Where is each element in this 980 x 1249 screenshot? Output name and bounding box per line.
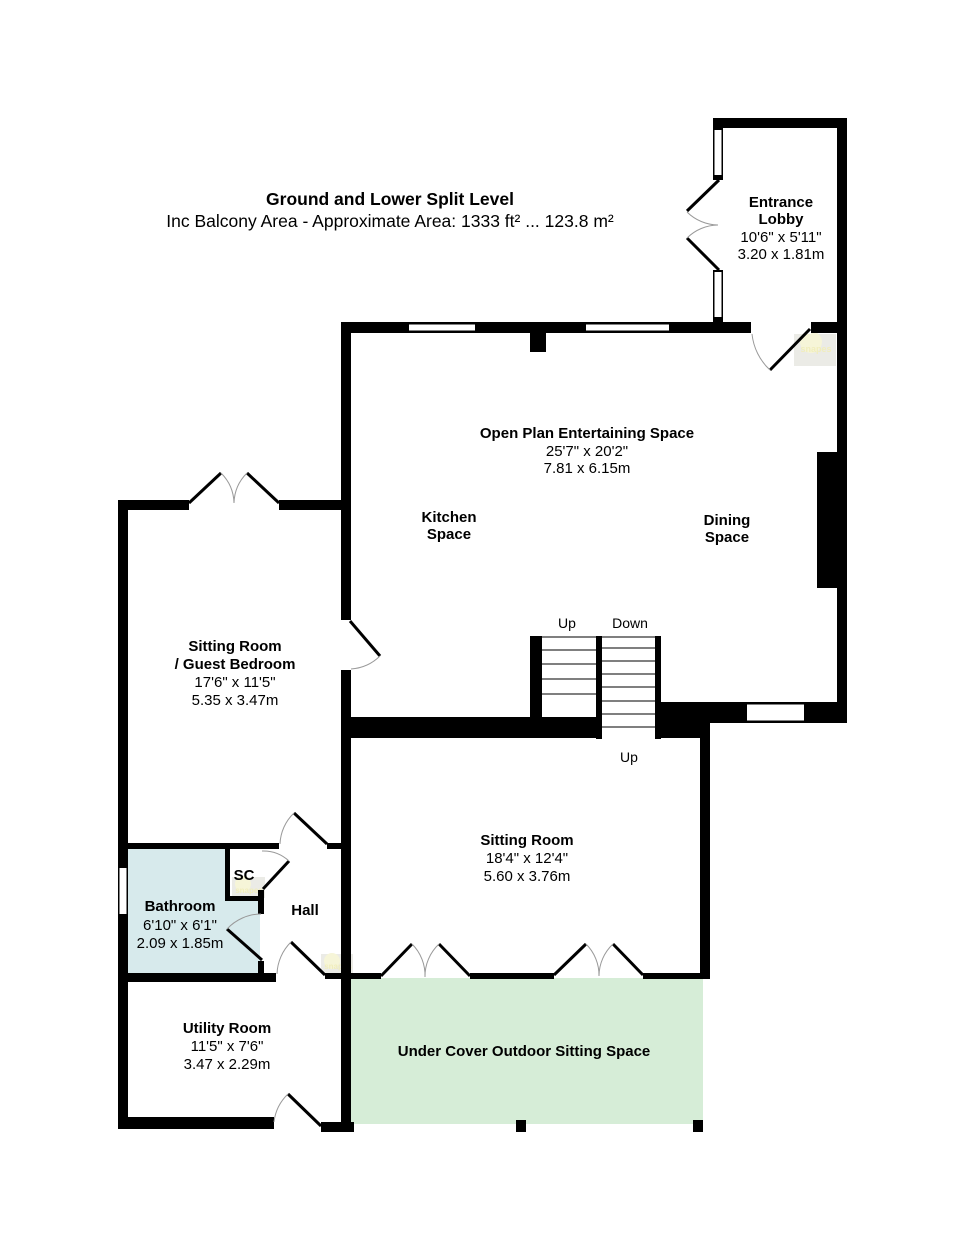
svg-text:7.81 x 6.15m: 7.81 x 6.15m <box>544 460 631 477</box>
svg-text:SC: SC <box>234 867 255 884</box>
svg-text:5.60 x 3.76m: 5.60 x 3.76m <box>484 868 571 885</box>
svg-text:10'6" x 5'11": 10'6" x 5'11" <box>740 229 821 246</box>
svg-text:Dining: Dining <box>704 512 751 529</box>
svg-text:11'5" x 7'6": 11'5" x 7'6" <box>191 1038 264 1055</box>
svg-text:Lobby: Lobby <box>759 211 805 228</box>
svg-text:6'10" x 6'1": 6'10" x 6'1" <box>143 917 217 934</box>
svg-text:Space: Space <box>705 529 749 546</box>
svg-text:Up: Up <box>558 615 576 631</box>
svg-text:3.47 x 2.29m: 3.47 x 2.29m <box>184 1056 271 1073</box>
svg-text:25'7" x 20'2": 25'7" x 20'2" <box>546 443 628 460</box>
svg-text:2.09 x 1.85m: 2.09 x 1.85m <box>137 935 224 952</box>
svg-text:Down: Down <box>612 615 648 631</box>
svg-text:Kitchen: Kitchen <box>421 509 476 526</box>
svg-text:Sitting Room: Sitting Room <box>188 638 281 655</box>
svg-text:Space: Space <box>427 526 471 543</box>
svg-text:3.20 x 1.81m: 3.20 x 1.81m <box>738 246 825 263</box>
svg-text:Hall: Hall <box>291 902 319 919</box>
svg-text:Open Plan Entertaining Space: Open Plan Entertaining Space <box>480 425 694 442</box>
svg-text:/ Guest Bedroom: / Guest Bedroom <box>175 656 296 673</box>
svg-text:Under Cover Outdoor Sitting Sp: Under Cover Outdoor Sitting Space <box>398 1043 651 1060</box>
svg-text:Entrance: Entrance <box>749 194 813 211</box>
svg-text:Up: Up <box>620 749 638 765</box>
svg-text:Ground and Lower Split Level: Ground and Lower Split Level <box>266 189 514 209</box>
svg-text:17'6" x 11'5": 17'6" x 11'5" <box>194 674 275 691</box>
svg-text:Sitting Room: Sitting Room <box>480 832 573 849</box>
svg-text:Utility Room: Utility Room <box>183 1020 271 1037</box>
svg-text:snapes: snapes <box>800 344 831 354</box>
svg-text:Bathroom: Bathroom <box>145 898 216 915</box>
svg-text:18'4" x 12'4": 18'4" x 12'4" <box>486 850 568 867</box>
svg-text:5.35 x 3.47m: 5.35 x 3.47m <box>192 692 279 709</box>
svg-text:Inc Balcony Area - Approximate: Inc Balcony Area - Approximate Area: 133… <box>166 211 614 231</box>
